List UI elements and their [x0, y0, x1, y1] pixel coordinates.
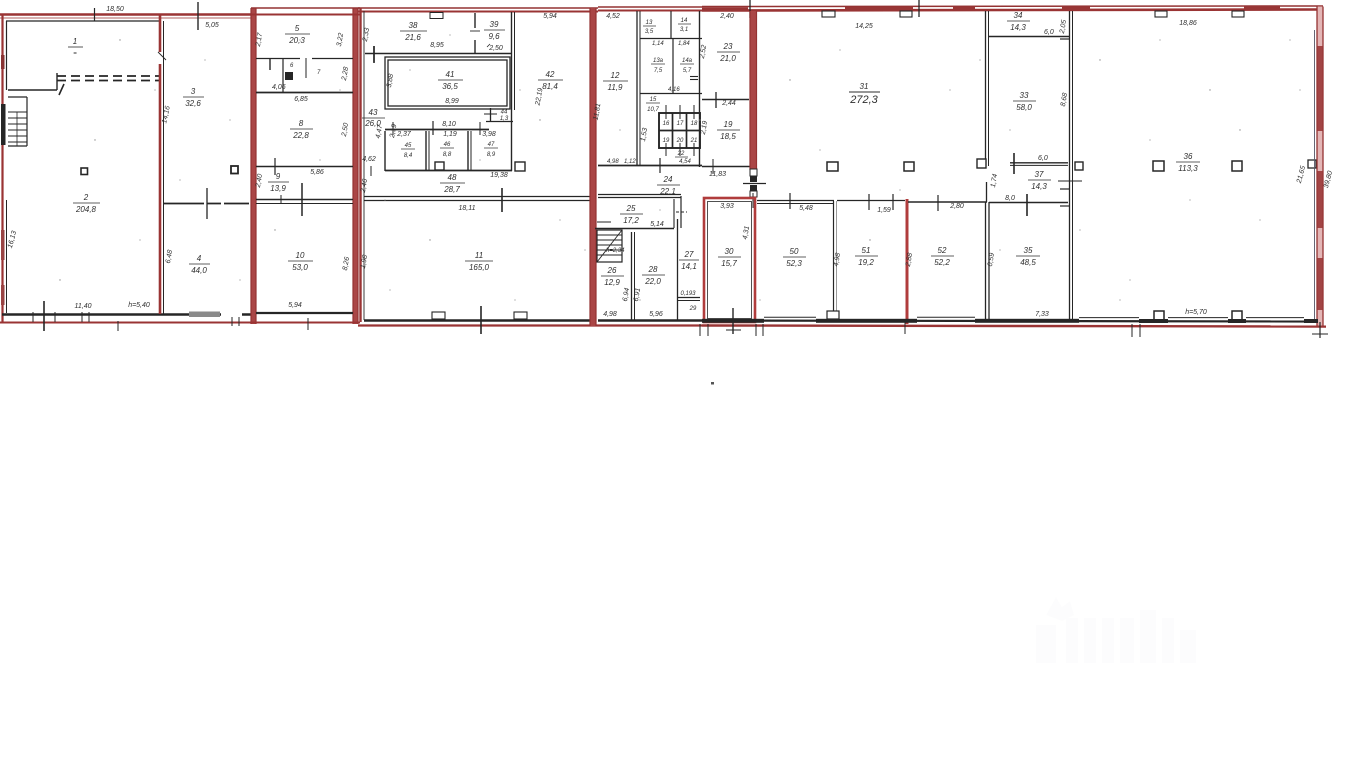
svg-text:10,7: 10,7 — [647, 107, 659, 113]
svg-text:46: 46 — [444, 142, 451, 148]
svg-text:4,54: 4,54 — [679, 159, 691, 165]
svg-text:h=5,70: h=5,70 — [1185, 309, 1207, 316]
svg-text:42: 42 — [546, 70, 555, 79]
svg-text:18,50: 18,50 — [106, 6, 124, 13]
svg-text:3,93: 3,93 — [720, 203, 734, 210]
svg-text:7,33: 7,33 — [1035, 311, 1049, 318]
svg-text:h=2,34: h=2,34 — [606, 248, 625, 254]
svg-text:18: 18 — [691, 121, 698, 127]
svg-text:11,83: 11,83 — [709, 171, 726, 178]
svg-text:12: 12 — [611, 71, 620, 80]
svg-text:1,59: 1,59 — [877, 207, 891, 214]
svg-text:52,3: 52,3 — [786, 259, 802, 268]
svg-text:8: 8 — [299, 119, 304, 128]
svg-text:272,3: 272,3 — [849, 94, 878, 106]
svg-text:21: 21 — [690, 138, 698, 144]
svg-text:4,06: 4,06 — [272, 84, 286, 91]
svg-text:22,8: 22,8 — [292, 131, 309, 140]
svg-text:15,7: 15,7 — [721, 259, 737, 268]
svg-text:6,0: 6,0 — [1038, 155, 1048, 162]
svg-text:12,9: 12,9 — [604, 278, 620, 287]
svg-text:21,0: 21,0 — [719, 54, 736, 63]
svg-text:52: 52 — [938, 246, 947, 255]
svg-text:51: 51 — [862, 246, 871, 255]
svg-text:14,1: 14,1 — [681, 262, 697, 271]
svg-text:11: 11 — [475, 251, 483, 260]
svg-text:44: 44 — [501, 110, 508, 116]
svg-text:19,2: 19,2 — [858, 258, 874, 267]
svg-text:5,7: 5,7 — [683, 68, 692, 74]
svg-text:1,12: 1,12 — [624, 159, 636, 165]
svg-text:38: 38 — [409, 21, 418, 30]
svg-text:11,9: 11,9 — [608, 83, 624, 92]
svg-text:19: 19 — [724, 120, 733, 129]
svg-text:41: 41 — [446, 70, 455, 79]
svg-text:7,5: 7,5 — [654, 68, 663, 74]
svg-text:5,48: 5,48 — [799, 205, 813, 212]
svg-text:8,99: 8,99 — [445, 98, 459, 105]
svg-text:1,3: 1,3 — [500, 116, 509, 122]
svg-text:20: 20 — [676, 138, 684, 144]
svg-text:47: 47 — [488, 142, 495, 148]
svg-text:24: 24 — [663, 175, 673, 184]
svg-text:4: 4 — [197, 254, 202, 263]
svg-text:113,3: 113,3 — [1178, 164, 1198, 173]
svg-text:14,25: 14,25 — [855, 23, 873, 30]
svg-text:22,0: 22,0 — [644, 277, 661, 286]
svg-text:14,3: 14,3 — [1031, 182, 1047, 191]
svg-text:5: 5 — [295, 24, 300, 33]
svg-text:30: 30 — [725, 247, 734, 256]
svg-text:=: = — [73, 51, 77, 57]
svg-text:39: 39 — [490, 20, 499, 29]
svg-text:8,95: 8,95 — [430, 42, 444, 49]
svg-text:31: 31 — [860, 82, 869, 91]
svg-text:13: 13 — [646, 20, 653, 26]
svg-text:6,0: 6,0 — [1044, 29, 1054, 36]
svg-text:25: 25 — [626, 204, 636, 213]
svg-text:8,9: 8,9 — [487, 152, 496, 158]
svg-text:35: 35 — [1024, 246, 1033, 255]
svg-text:37: 37 — [1035, 170, 1044, 179]
svg-text:5,05: 5,05 — [205, 22, 219, 29]
svg-text:27: 27 — [684, 250, 694, 259]
svg-text:26: 26 — [607, 266, 617, 275]
svg-text:22: 22 — [677, 151, 685, 157]
svg-text:53,0: 53,0 — [292, 263, 308, 272]
svg-text:44,0: 44,0 — [191, 266, 207, 275]
svg-text:9: 9 — [276, 172, 281, 181]
svg-text:50: 50 — [790, 247, 799, 256]
svg-text:14a: 14a — [682, 58, 693, 64]
svg-text:204,8: 204,8 — [75, 205, 97, 214]
svg-text:16: 16 — [663, 121, 670, 127]
svg-text:14: 14 — [681, 18, 688, 24]
svg-text:8,10: 8,10 — [442, 121, 456, 128]
svg-text:1: 1 — [73, 37, 77, 46]
svg-text:18,11: 18,11 — [459, 205, 476, 212]
svg-text:2,37: 2,37 — [396, 131, 412, 138]
svg-text:81,4: 81,4 — [542, 82, 558, 91]
svg-text:14,3: 14,3 — [1010, 23, 1026, 32]
svg-text:15: 15 — [650, 97, 657, 103]
svg-text:8,8: 8,8 — [443, 152, 452, 158]
svg-text:5,94: 5,94 — [543, 13, 557, 20]
svg-text:20,3: 20,3 — [288, 36, 305, 45]
svg-text:17: 17 — [677, 121, 684, 127]
svg-text:8,4: 8,4 — [404, 153, 413, 159]
svg-text:21,6: 21,6 — [404, 33, 421, 42]
svg-text:5,86: 5,86 — [310, 169, 324, 176]
svg-text:4,52: 4,52 — [606, 13, 620, 20]
svg-text:34: 34 — [1014, 11, 1023, 20]
svg-text:4,98: 4,98 — [603, 311, 617, 318]
svg-text:19: 19 — [663, 138, 670, 144]
svg-text:4,16: 4,16 — [668, 87, 680, 93]
svg-text:13a: 13a — [653, 58, 664, 64]
svg-text:1,84: 1,84 — [678, 41, 690, 47]
svg-text:0,193: 0,193 — [680, 291, 696, 297]
svg-text:8,0: 8,0 — [1005, 195, 1015, 202]
svg-text:45: 45 — [405, 143, 412, 149]
svg-text:165,0: 165,0 — [469, 263, 490, 272]
svg-text:3,98: 3,98 — [482, 131, 496, 138]
svg-text:28: 28 — [648, 265, 658, 274]
svg-text:18,5: 18,5 — [720, 132, 736, 141]
svg-text:58,0: 58,0 — [1016, 103, 1032, 112]
svg-text:2,80: 2,80 — [949, 203, 964, 210]
svg-text:36: 36 — [1184, 152, 1193, 161]
svg-text:29: 29 — [689, 306, 697, 312]
svg-text:9,6: 9,6 — [488, 32, 500, 41]
svg-text:23: 23 — [723, 42, 733, 51]
svg-text:4,62: 4,62 — [362, 156, 376, 163]
svg-text:1,19: 1,19 — [443, 131, 457, 138]
svg-text:h=5,40: h=5,40 — [128, 302, 150, 309]
svg-text:48,5: 48,5 — [1020, 258, 1036, 267]
svg-text:10: 10 — [296, 251, 305, 260]
svg-text:33: 33 — [1020, 91, 1029, 100]
svg-text:5,94: 5,94 — [288, 302, 302, 309]
svg-text:43: 43 — [369, 108, 378, 117]
svg-text:19,38: 19,38 — [490, 172, 508, 179]
svg-text:3,1: 3,1 — [680, 27, 688, 33]
svg-text:11,40: 11,40 — [75, 303, 92, 310]
svg-text:2,50: 2,50 — [488, 45, 503, 52]
svg-text:5,96: 5,96 — [649, 311, 663, 318]
svg-text:1,14: 1,14 — [652, 41, 664, 47]
svg-text:2: 2 — [83, 193, 89, 202]
svg-text:52,2: 52,2 — [934, 258, 950, 267]
svg-text:2,40: 2,40 — [719, 13, 734, 20]
svg-text:5,14: 5,14 — [650, 221, 664, 228]
svg-text:6,85: 6,85 — [294, 96, 308, 103]
svg-text:18,86: 18,86 — [1179, 20, 1197, 27]
svg-text:32,6: 32,6 — [185, 99, 201, 108]
svg-text:48: 48 — [448, 173, 457, 182]
svg-text:2,44: 2,44 — [721, 100, 736, 107]
svg-text:28,7: 28,7 — [443, 185, 460, 194]
svg-text:3: 3 — [191, 87, 196, 96]
svg-text:36,5: 36,5 — [442, 82, 458, 91]
svg-text:4,98: 4,98 — [607, 159, 619, 165]
svg-text:13,9: 13,9 — [270, 184, 286, 193]
svg-text:3,5: 3,5 — [645, 29, 654, 35]
svg-text:17,2: 17,2 — [623, 216, 639, 225]
